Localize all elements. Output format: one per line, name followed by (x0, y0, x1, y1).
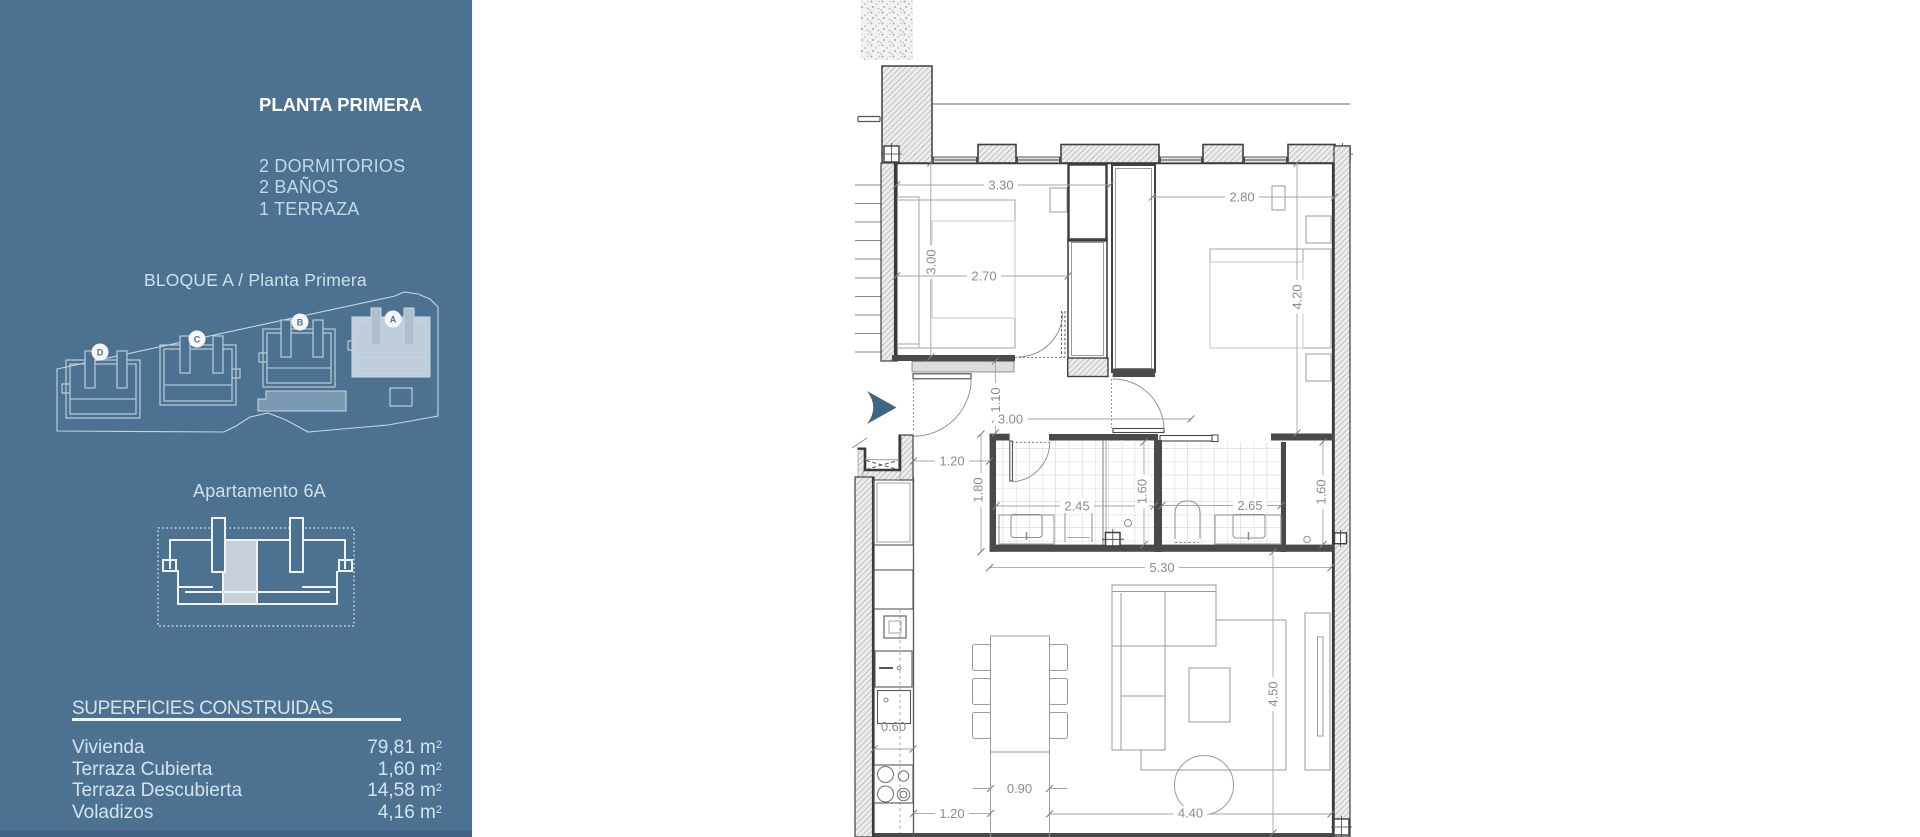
svg-text:1.60: 1.60 (1314, 479, 1329, 504)
svg-text:2.65: 2.65 (1237, 498, 1262, 513)
svg-text:1.20: 1.20 (939, 806, 964, 821)
svg-text:5.30: 5.30 (1149, 560, 1174, 575)
svg-text:1.10: 1.10 (988, 387, 1003, 412)
svg-text:4.20: 4.20 (1290, 284, 1305, 309)
svg-text:3.00: 3.00 (923, 249, 938, 274)
svg-text:4.40: 4.40 (1178, 806, 1203, 821)
svg-text:2.80: 2.80 (1229, 190, 1254, 205)
svg-text:0.60: 0.60 (881, 719, 906, 734)
svg-text:0.90: 0.90 (1007, 781, 1032, 796)
svg-text:1.20: 1.20 (939, 454, 964, 469)
svg-text:3.00: 3.00 (998, 412, 1023, 427)
svg-text:1.80: 1.80 (971, 477, 986, 502)
svg-text:4.50: 4.50 (1266, 681, 1281, 706)
svg-text:1.60: 1.60 (1135, 479, 1150, 504)
svg-text:3.30: 3.30 (988, 178, 1013, 193)
svg-text:2.45: 2.45 (1064, 499, 1089, 514)
svg-text:2.70: 2.70 (971, 269, 996, 284)
